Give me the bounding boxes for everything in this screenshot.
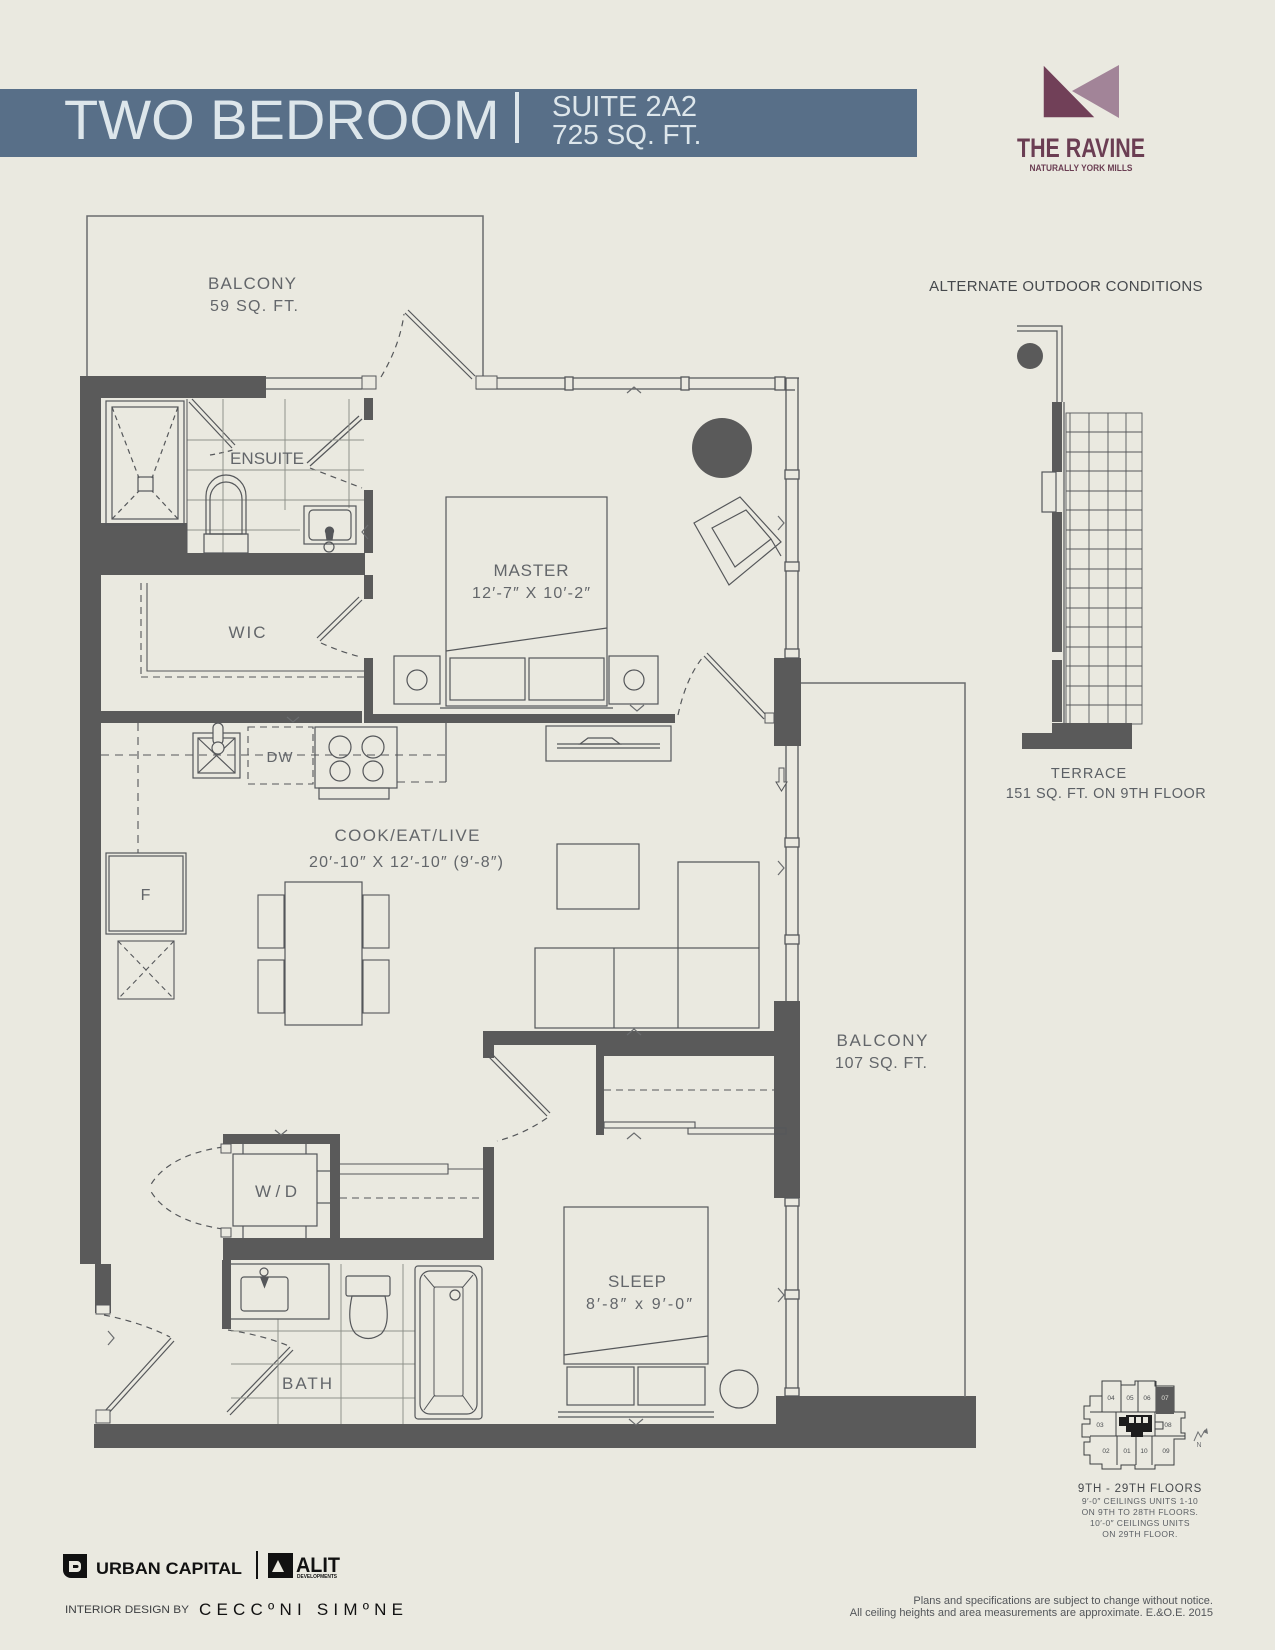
svg-text:BATH: BATH	[282, 1374, 332, 1393]
svg-text:URBAN CAPITAL: URBAN CAPITAL	[96, 1559, 242, 1578]
svg-text:Plans and specifications are s: Plans and specifications are subject to …	[913, 1595, 1213, 1607]
svg-text:10′-0″ CEILINGS UNITS: 10′-0″ CEILINGS UNITS	[1090, 1518, 1190, 1528]
svg-text:9′-0″ CEILINGS UNITS 1-10: 9′-0″ CEILINGS UNITS 1-10	[1082, 1496, 1198, 1506]
svg-text:9TH - 29TH FLOORS: 9TH - 29TH FLOORS	[1078, 1483, 1202, 1495]
svg-text:ON 29TH FLOOR.: ON 29TH FLOOR.	[1102, 1529, 1178, 1539]
svg-text:THE RAVINE: THE RAVINE	[1017, 133, 1145, 163]
svg-text:BALCONY: BALCONY	[208, 274, 296, 293]
svg-text:08: 08	[1164, 1422, 1172, 1429]
svg-text:MASTER: MASTER	[494, 561, 569, 580]
svg-text:07: 07	[1161, 1395, 1169, 1402]
svg-text:59 SQ. FT.: 59 SQ. FT.	[210, 298, 298, 315]
svg-text:01: 01	[1123, 1448, 1131, 1455]
svg-text:INTERIOR DESIGN BY: INTERIOR DESIGN BY	[65, 1604, 190, 1616]
svg-text:03: 03	[1096, 1422, 1104, 1429]
svg-text:BALCONY: BALCONY	[837, 1031, 928, 1050]
svg-text:09: 09	[1162, 1448, 1170, 1455]
svg-text:TERRACE: TERRACE	[1051, 766, 1127, 782]
svg-text:8′-8″ x 9′-0″: 8′-8″ x 9′-0″	[586, 1296, 692, 1313]
svg-text:06: 06	[1143, 1395, 1151, 1402]
svg-text:ALTERNATE OUTDOOR CONDITIONS: ALTERNATE OUTDOOR CONDITIONS	[929, 278, 1203, 295]
svg-text:ON 9TH TO 28TH FLOORS.: ON 9TH TO 28TH FLOORS.	[1082, 1507, 1199, 1517]
svg-text:725 SQ. FT.: 725 SQ. FT.	[552, 119, 701, 150]
svg-text:12′-7″ X 10′-2″: 12′-7″ X 10′-2″	[472, 585, 590, 602]
svg-text:CECCºNI SIMºNE: CECCºNI SIMºNE	[199, 1600, 407, 1619]
svg-text:ENSUITE: ENSUITE	[230, 449, 304, 468]
svg-text:F: F	[141, 887, 152, 904]
svg-text:20′-10″ X 12′-10″ (9′-8″): 20′-10″ X 12′-10″ (9′-8″)	[309, 854, 503, 871]
svg-text:DW: DW	[267, 749, 294, 766]
svg-text:04: 04	[1107, 1395, 1115, 1402]
svg-text:151 SQ. FT. ON 9TH FLOOR: 151 SQ. FT. ON 9TH FLOOR	[1006, 786, 1207, 802]
svg-text:10: 10	[1140, 1448, 1148, 1455]
svg-text:TWO BEDROOM: TWO BEDROOM	[64, 88, 500, 151]
svg-text:NATURALLY YORK MILLS: NATURALLY YORK MILLS	[1030, 163, 1133, 174]
svg-text:05: 05	[1126, 1395, 1134, 1402]
svg-text:107 SQ. FT.: 107 SQ. FT.	[835, 1055, 927, 1072]
svg-text:02: 02	[1102, 1448, 1110, 1455]
svg-text:COOK/EAT/LIVE: COOK/EAT/LIVE	[335, 826, 480, 845]
svg-text:DEVELOPMENTS: DEVELOPMENTS	[297, 1574, 337, 1580]
svg-text:WIC: WIC	[229, 623, 266, 642]
svg-text:All ceiling heights and area m: All ceiling heights and area measurement…	[850, 1607, 1213, 1619]
svg-text:SLEEP: SLEEP	[608, 1272, 666, 1291]
svg-text:N: N	[1196, 1442, 1201, 1449]
svg-text:W/D: W/D	[255, 1182, 297, 1201]
